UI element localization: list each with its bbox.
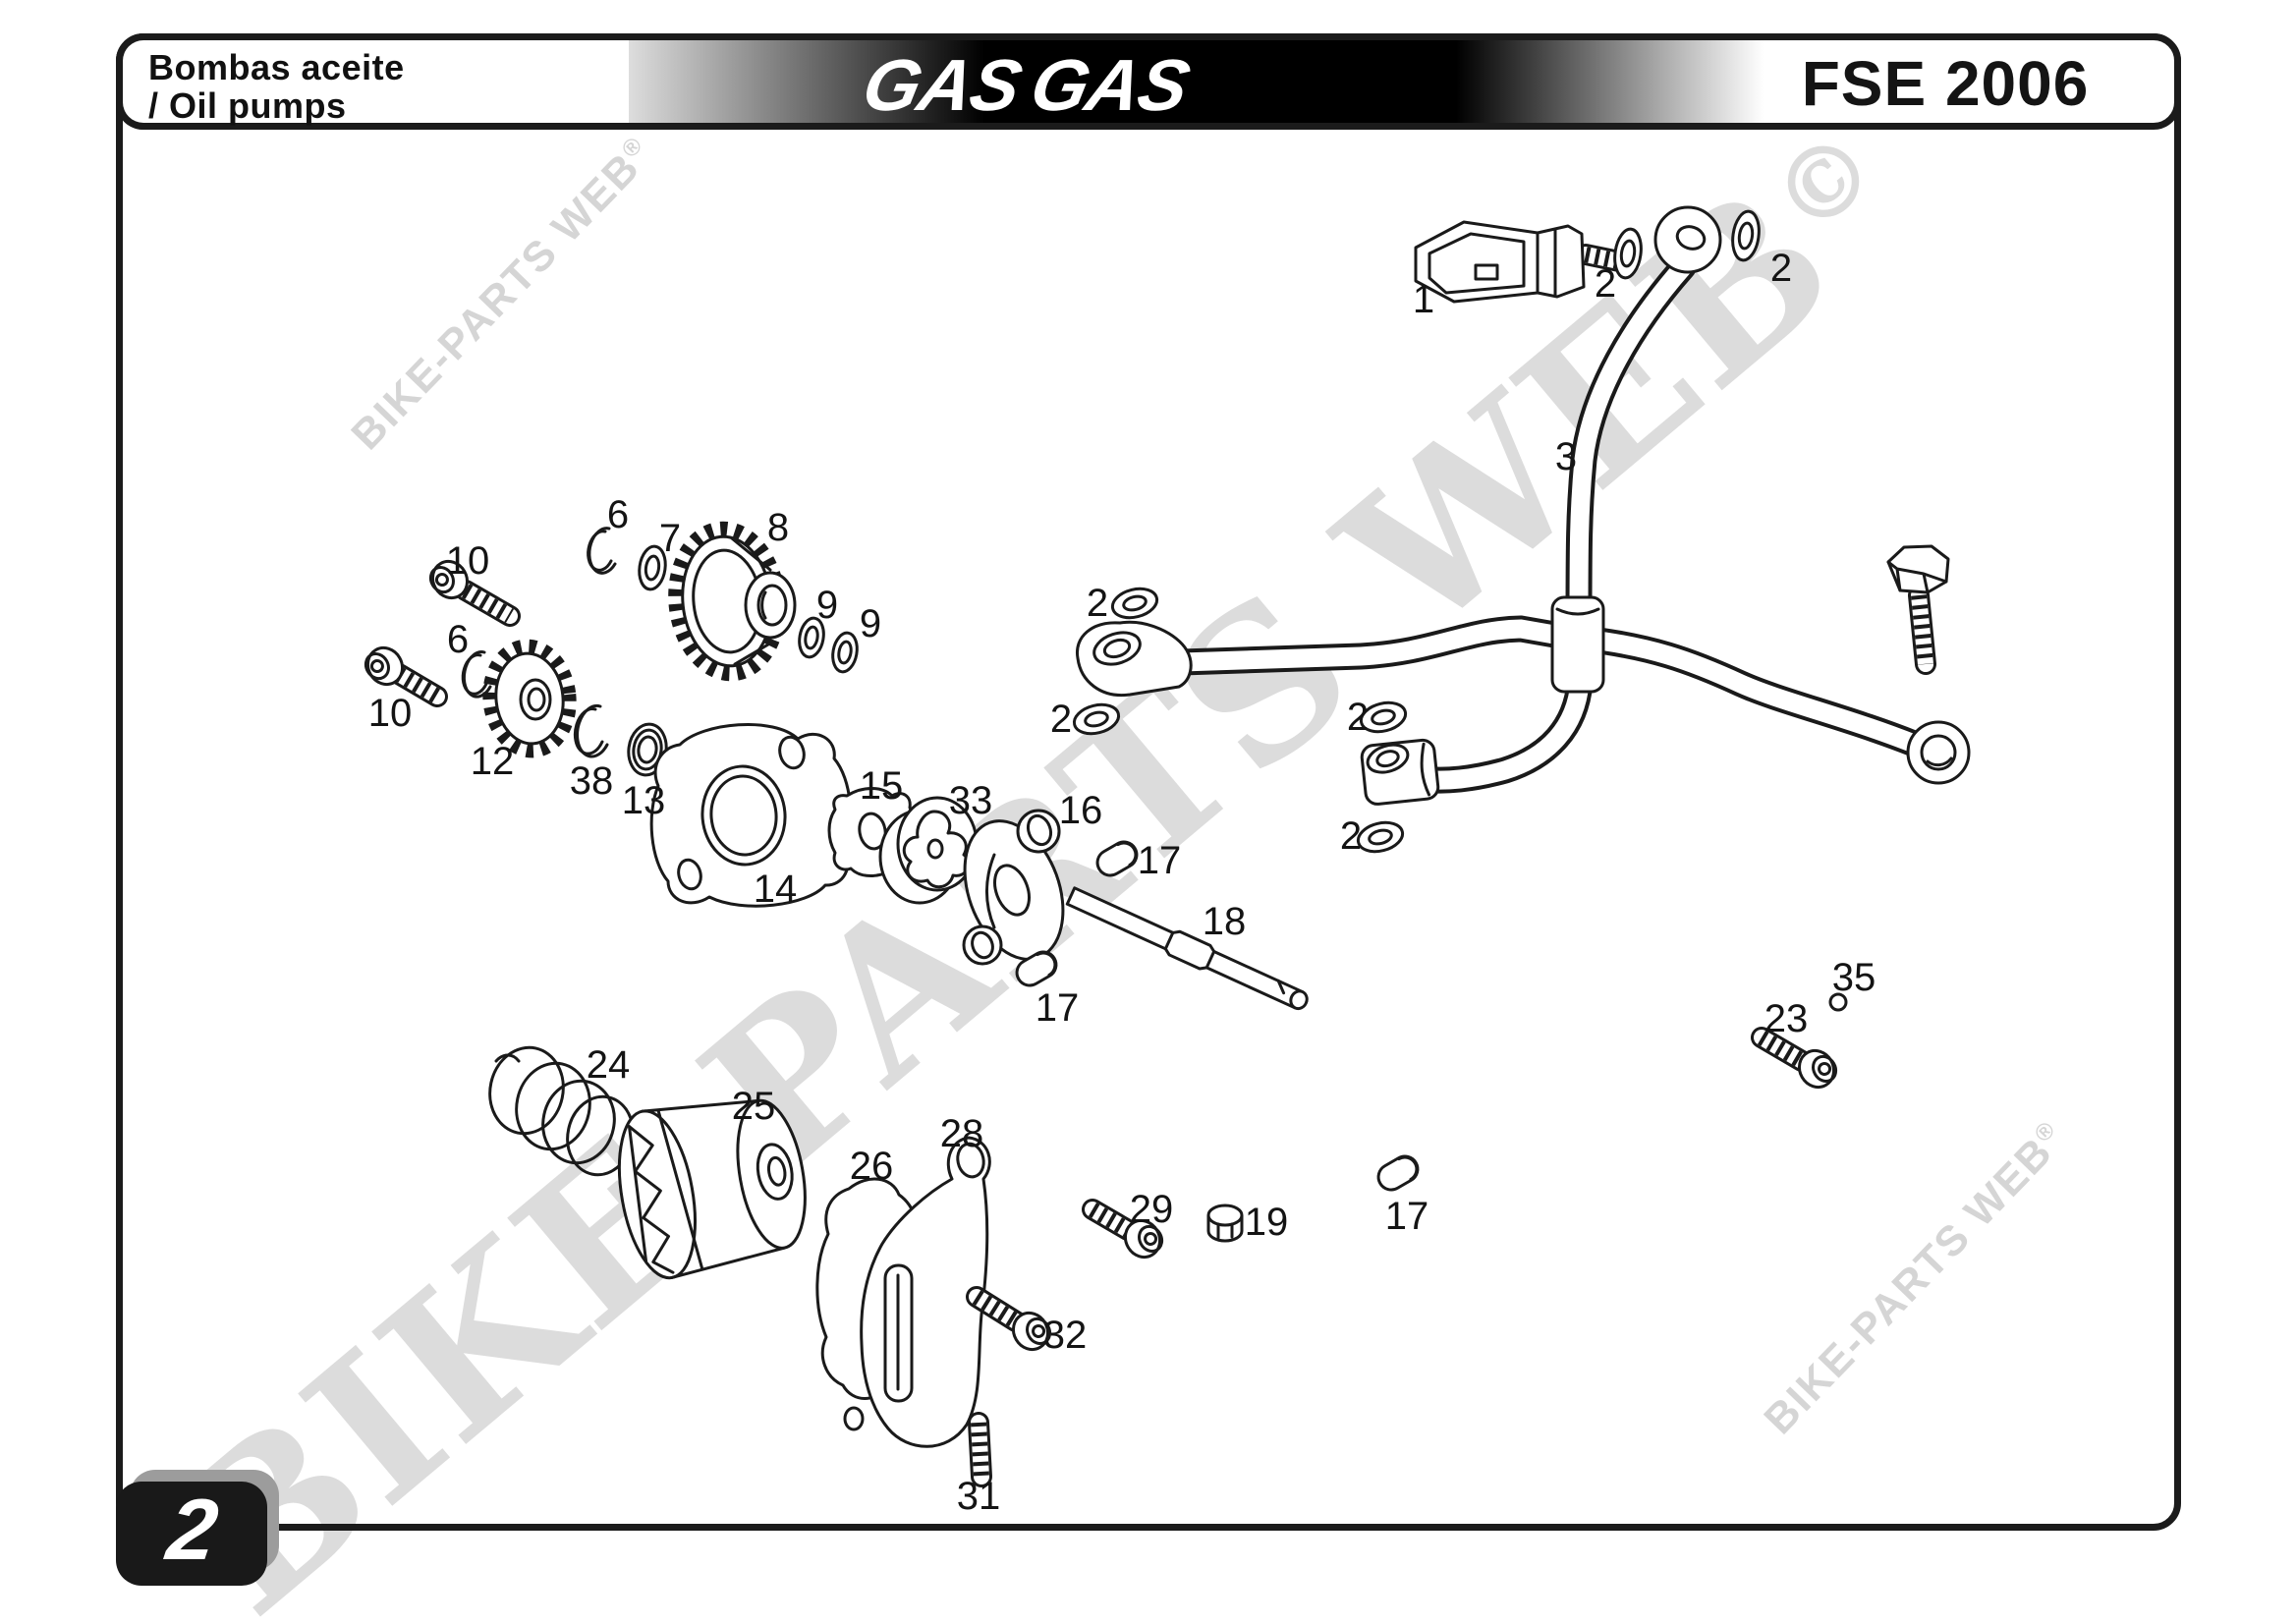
callout-label: 28 — [940, 1112, 984, 1155]
callout-label: 35 — [1832, 956, 1876, 999]
parts-catalog-page: BIKE-PARTS WEB® BIKE-PARTS WEB© BIKE-PAR… — [0, 0, 2296, 1624]
callout-label: 3 — [1555, 435, 1577, 478]
exploded-parts-diagram: 1 2 2 3 6 7 8 9 9 10 6 10 12 38 13 14 15… — [0, 0, 2296, 1624]
callout-label: 25 — [732, 1085, 776, 1128]
callout-label: 17 — [1138, 839, 1182, 882]
callout-label: 26 — [850, 1145, 894, 1188]
part-circlip-38 — [575, 705, 607, 756]
callout-label: 38 — [570, 759, 614, 803]
part-oil-pipe-assembly — [1077, 207, 1969, 806]
callout-label: 23 — [1764, 997, 1809, 1040]
part-oil-pressure-sensor — [1416, 222, 1619, 302]
title-line-2: / Oil pumps — [148, 86, 629, 125]
callout-label: 2 — [1340, 814, 1362, 858]
part-pin-17c — [1373, 1151, 1422, 1195]
model-label: FSE 2006 — [1729, 47, 2161, 120]
part-stud-31 — [979, 1423, 981, 1477]
callout-label: 13 — [622, 779, 666, 822]
page-title: Bombas aceite / Oil pumps — [116, 33, 629, 130]
callout-label: 2 — [1050, 698, 1072, 741]
callout-label: 2 — [1347, 696, 1369, 739]
callout-label: 10 — [446, 539, 490, 583]
page-number: 2 — [160, 1480, 223, 1588]
callout-label: 18 — [1203, 900, 1247, 943]
callout-label: 9 — [860, 602, 881, 645]
callout-label: 1 — [1413, 278, 1434, 321]
part-bolt-10-lower — [361, 642, 437, 697]
title-line-1: Bombas aceite — [148, 48, 629, 86]
callout-label: 8 — [767, 506, 789, 549]
callout-label: 10 — [368, 692, 413, 735]
callout-label: 24 — [587, 1043, 631, 1087]
callout-label: 12 — [471, 740, 515, 783]
callout-label: 29 — [1130, 1188, 1174, 1231]
part-gear-12 — [485, 643, 575, 755]
callout-label: 14 — [754, 868, 798, 911]
callout-label: 32 — [1043, 1314, 1088, 1357]
callout-label: 9 — [816, 584, 838, 627]
part-pin-17a — [1092, 837, 1141, 880]
callout-label: 6 — [447, 618, 469, 661]
part-washer-9b — [830, 631, 861, 674]
brand-logo: GAS GAS — [856, 43, 1196, 127]
callout-label: 31 — [957, 1475, 1001, 1518]
part-cap-19 — [1208, 1205, 1242, 1241]
part-hex-bolt — [1888, 546, 1948, 664]
callout-label: 15 — [860, 764, 904, 808]
callout-label: 17 — [1036, 986, 1080, 1030]
callout-labels: 1 2 2 3 6 7 8 9 9 10 6 10 12 38 13 14 15… — [368, 247, 1876, 1518]
callout-label: 16 — [1059, 789, 1103, 832]
page-number-box: 2 — [116, 1482, 267, 1586]
part-bolt-23 — [1762, 1037, 1841, 1093]
callout-label: 2 — [1087, 582, 1108, 625]
callout-label: 2 — [1595, 262, 1616, 306]
callout-label: 19 — [1245, 1201, 1289, 1244]
part-pump-housing-14 — [651, 724, 850, 906]
callout-label: 2 — [1770, 247, 1792, 290]
callout-label: 6 — [607, 493, 629, 536]
part-shaft-18 — [1066, 884, 1312, 1015]
part-oil-filter-25 — [608, 1086, 817, 1284]
callout-label: 7 — [659, 517, 681, 560]
callout-label: 33 — [949, 779, 993, 822]
callout-label: 17 — [1385, 1195, 1429, 1238]
